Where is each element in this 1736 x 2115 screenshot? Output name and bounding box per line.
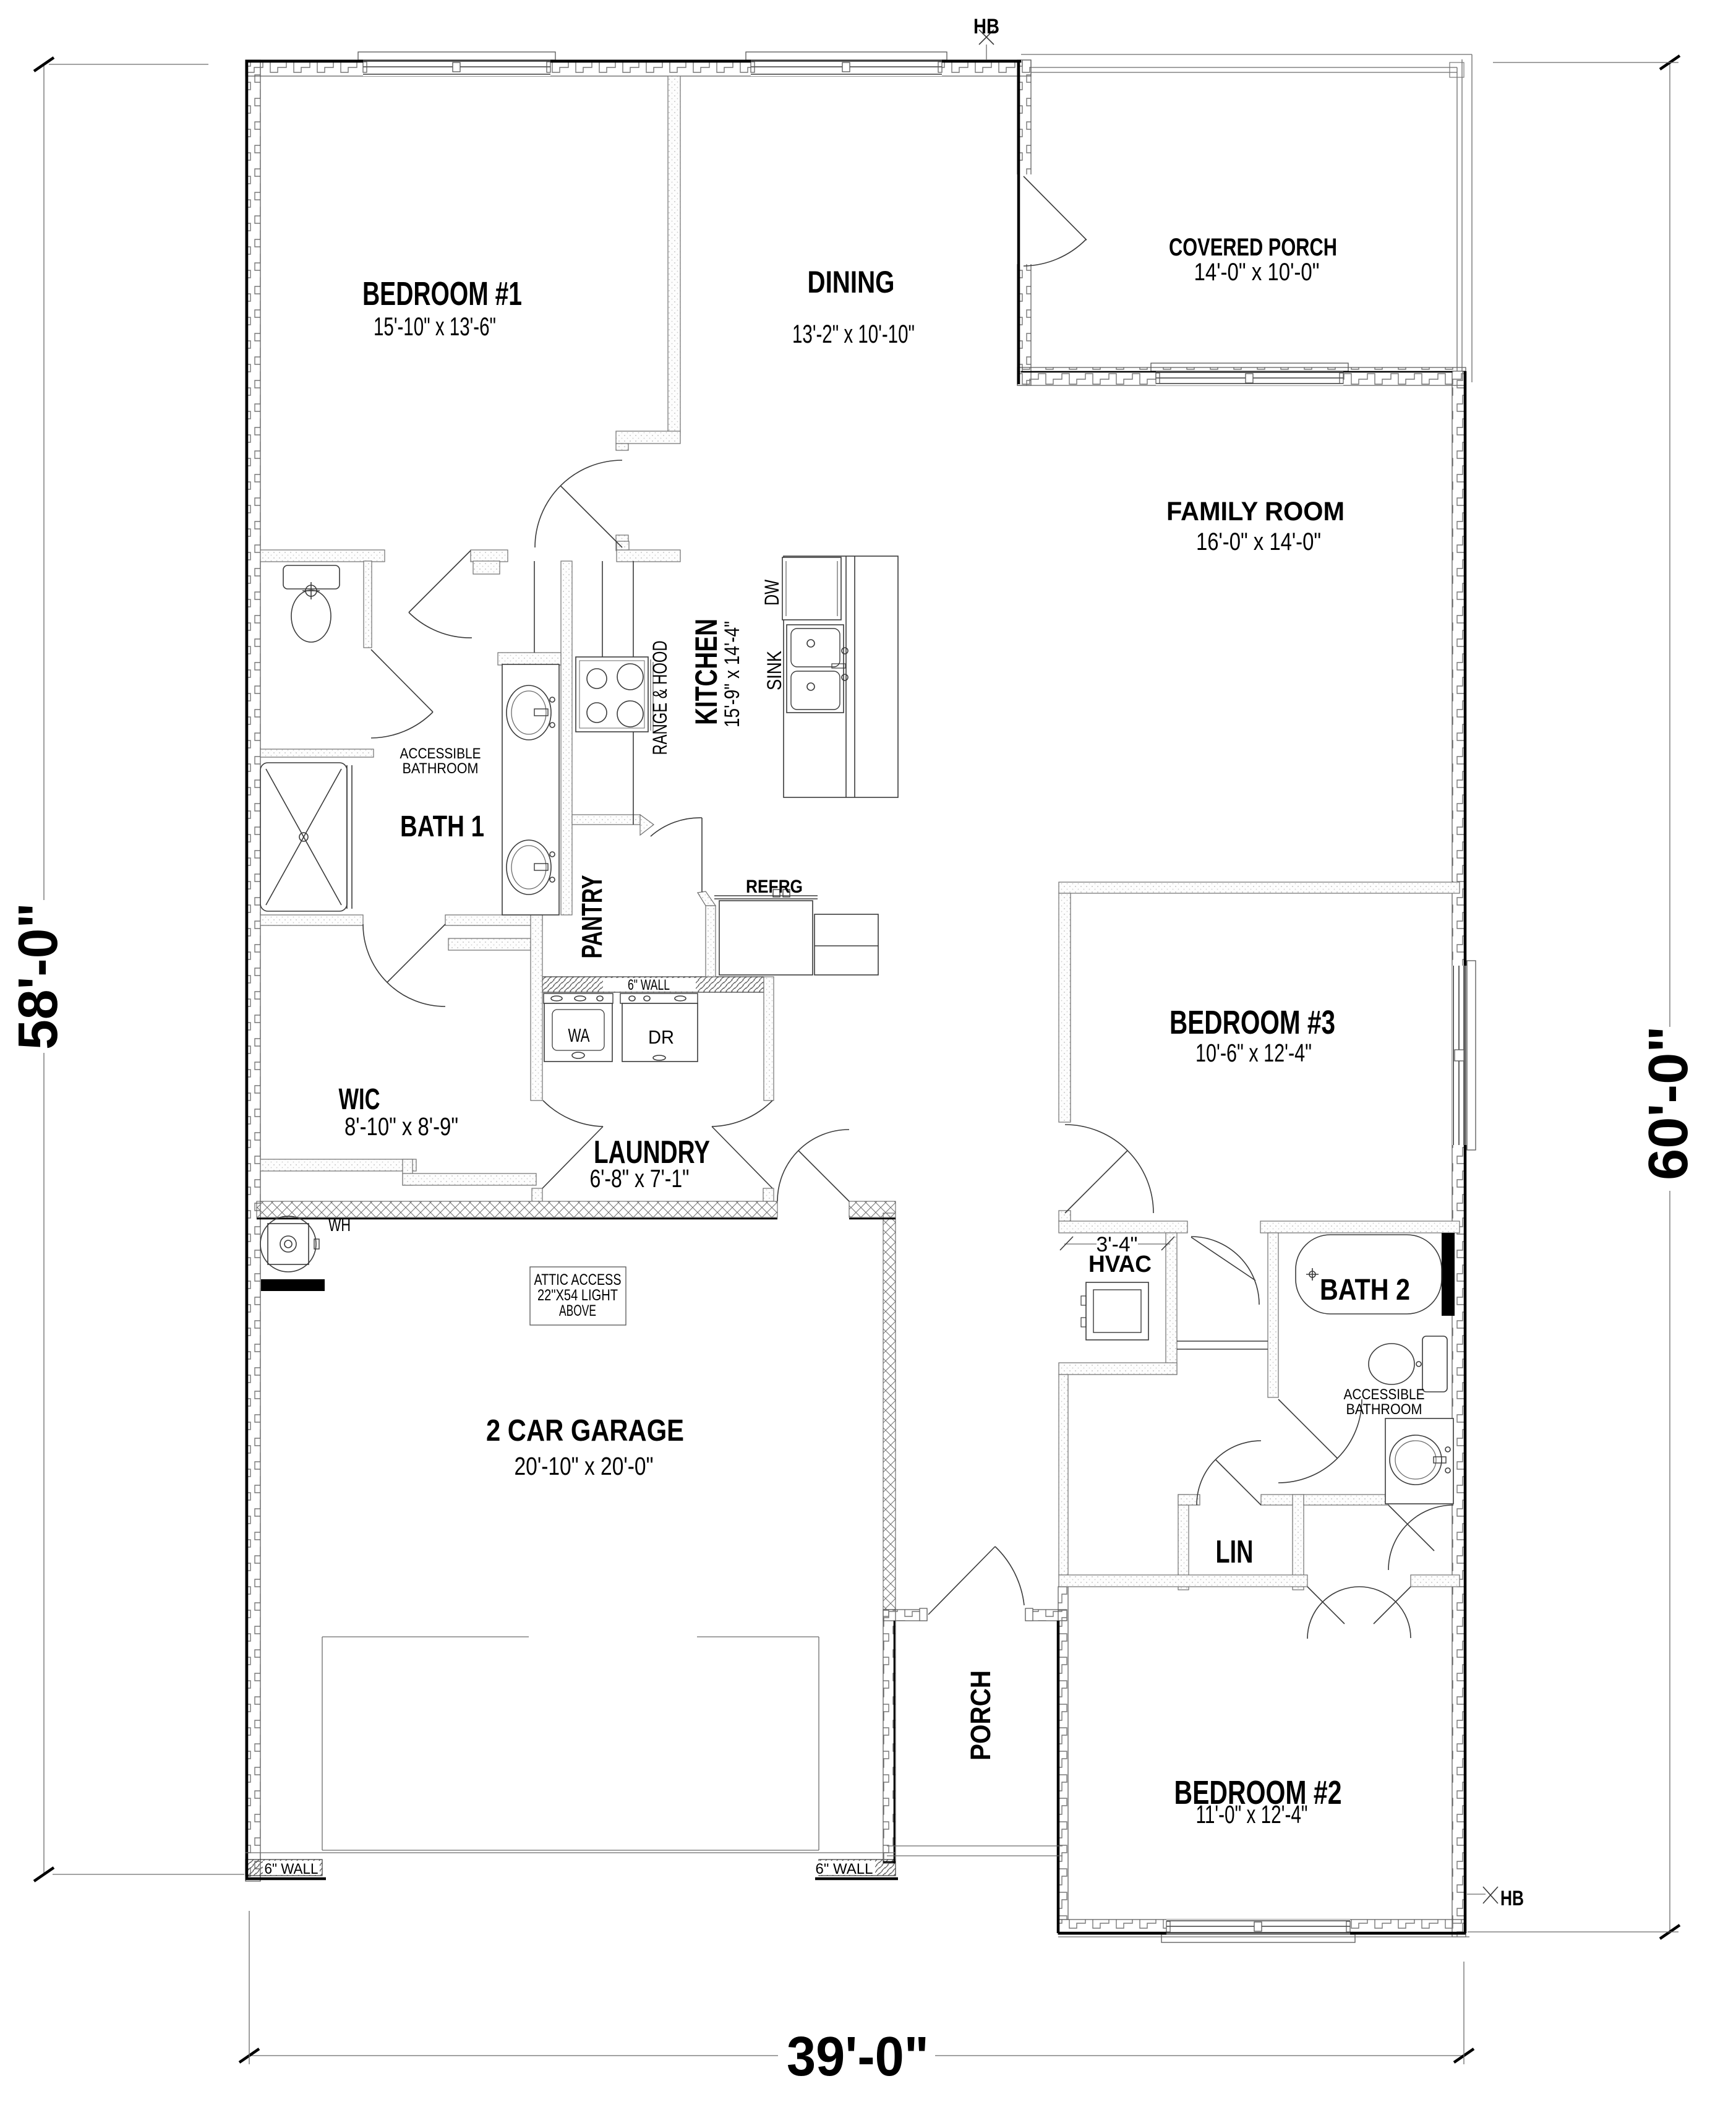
svg-text:15'-10" x 13'-6": 15'-10" x 13'-6" [374, 312, 496, 341]
svg-text:6" WALL: 6" WALL [816, 1861, 873, 1877]
svg-text:22"X54 LIGHT: 22"X54 LIGHT [537, 1287, 618, 1304]
svg-text:COVERED PORCH: COVERED PORCH [1169, 234, 1337, 261]
svg-text:HB: HB [973, 15, 999, 38]
svg-text:RANGE & HOOD: RANGE & HOOD [649, 641, 671, 755]
svg-text:BEDROOM #1: BEDROOM #1 [362, 275, 522, 312]
svg-text:14'-0" x 10'-0": 14'-0" x 10'-0" [1194, 259, 1320, 286]
svg-text:ABOVE: ABOVE [559, 1302, 596, 1319]
svg-text:16'-0" x 14'-0": 16'-0" x 14'-0" [1196, 528, 1321, 556]
svg-text:ACCESSIBLE: ACCESSIBLE [400, 745, 481, 762]
svg-text:SINK: SINK [763, 651, 785, 690]
svg-text:BATHROOM: BATHROOM [1346, 1401, 1422, 1418]
svg-text:WH: WH [328, 1216, 351, 1235]
svg-text:6" WALL: 6" WALL [628, 977, 670, 993]
svg-text:58'-0": 58'-0" [7, 903, 69, 1050]
svg-text:HVAC: HVAC [1088, 1251, 1152, 1277]
svg-text:PORCH: PORCH [965, 1670, 996, 1761]
svg-text:FAMILY ROOM: FAMILY ROOM [1166, 497, 1345, 526]
svg-text:DW: DW [761, 579, 783, 606]
svg-text:KITCHEN: KITCHEN [689, 619, 724, 725]
svg-text:DR: DR [648, 1026, 674, 1048]
svg-text:WIC: WIC [339, 1083, 380, 1116]
svg-text:10'-6" x 12'-4": 10'-6" x 12'-4" [1195, 1039, 1312, 1067]
svg-text:2 CAR GARAGE: 2 CAR GARAGE [486, 1414, 684, 1448]
svg-text:WA: WA [568, 1024, 590, 1046]
svg-text:BATH 2: BATH 2 [1320, 1274, 1410, 1306]
svg-text:BATHROOM: BATHROOM [403, 760, 479, 777]
svg-text:PANTRY: PANTRY [576, 875, 608, 959]
svg-text:15'-9" x 14'-4": 15'-9" x 14'-4" [720, 621, 744, 727]
svg-text:ATTIC ACCESS: ATTIC ACCESS [534, 1271, 622, 1289]
svg-text:13'-2" x 10'-10": 13'-2" x 10'-10" [792, 319, 915, 348]
svg-text:REFRG: REFRG [746, 877, 803, 897]
svg-text:20'-10" x 20'-0": 20'-10" x 20'-0" [515, 1452, 654, 1480]
svg-text:39'-0": 39'-0" [787, 2026, 929, 2088]
svg-text:BATH 1: BATH 1 [400, 810, 484, 843]
svg-text:BEDROOM #3: BEDROOM #3 [1169, 1004, 1335, 1041]
svg-text:11'-0" x 12'-4": 11'-0" x 12'-4" [1196, 1800, 1308, 1829]
svg-text:60'-0": 60'-0" [1638, 1026, 1700, 1180]
svg-text:LIN: LIN [1216, 1534, 1254, 1570]
svg-text:6" WALL: 6" WALL [265, 1861, 319, 1877]
svg-text:ACCESSIBLE: ACCESSIBLE [1344, 1386, 1425, 1403]
svg-text:DINING: DINING [808, 265, 895, 299]
svg-text:HB: HB [1500, 1887, 1524, 1910]
svg-text:8'-10" x 8'-9": 8'-10" x 8'-9" [344, 1112, 458, 1141]
svg-text:6'-8" x 7'-1": 6'-8" x 7'-1" [590, 1164, 690, 1193]
